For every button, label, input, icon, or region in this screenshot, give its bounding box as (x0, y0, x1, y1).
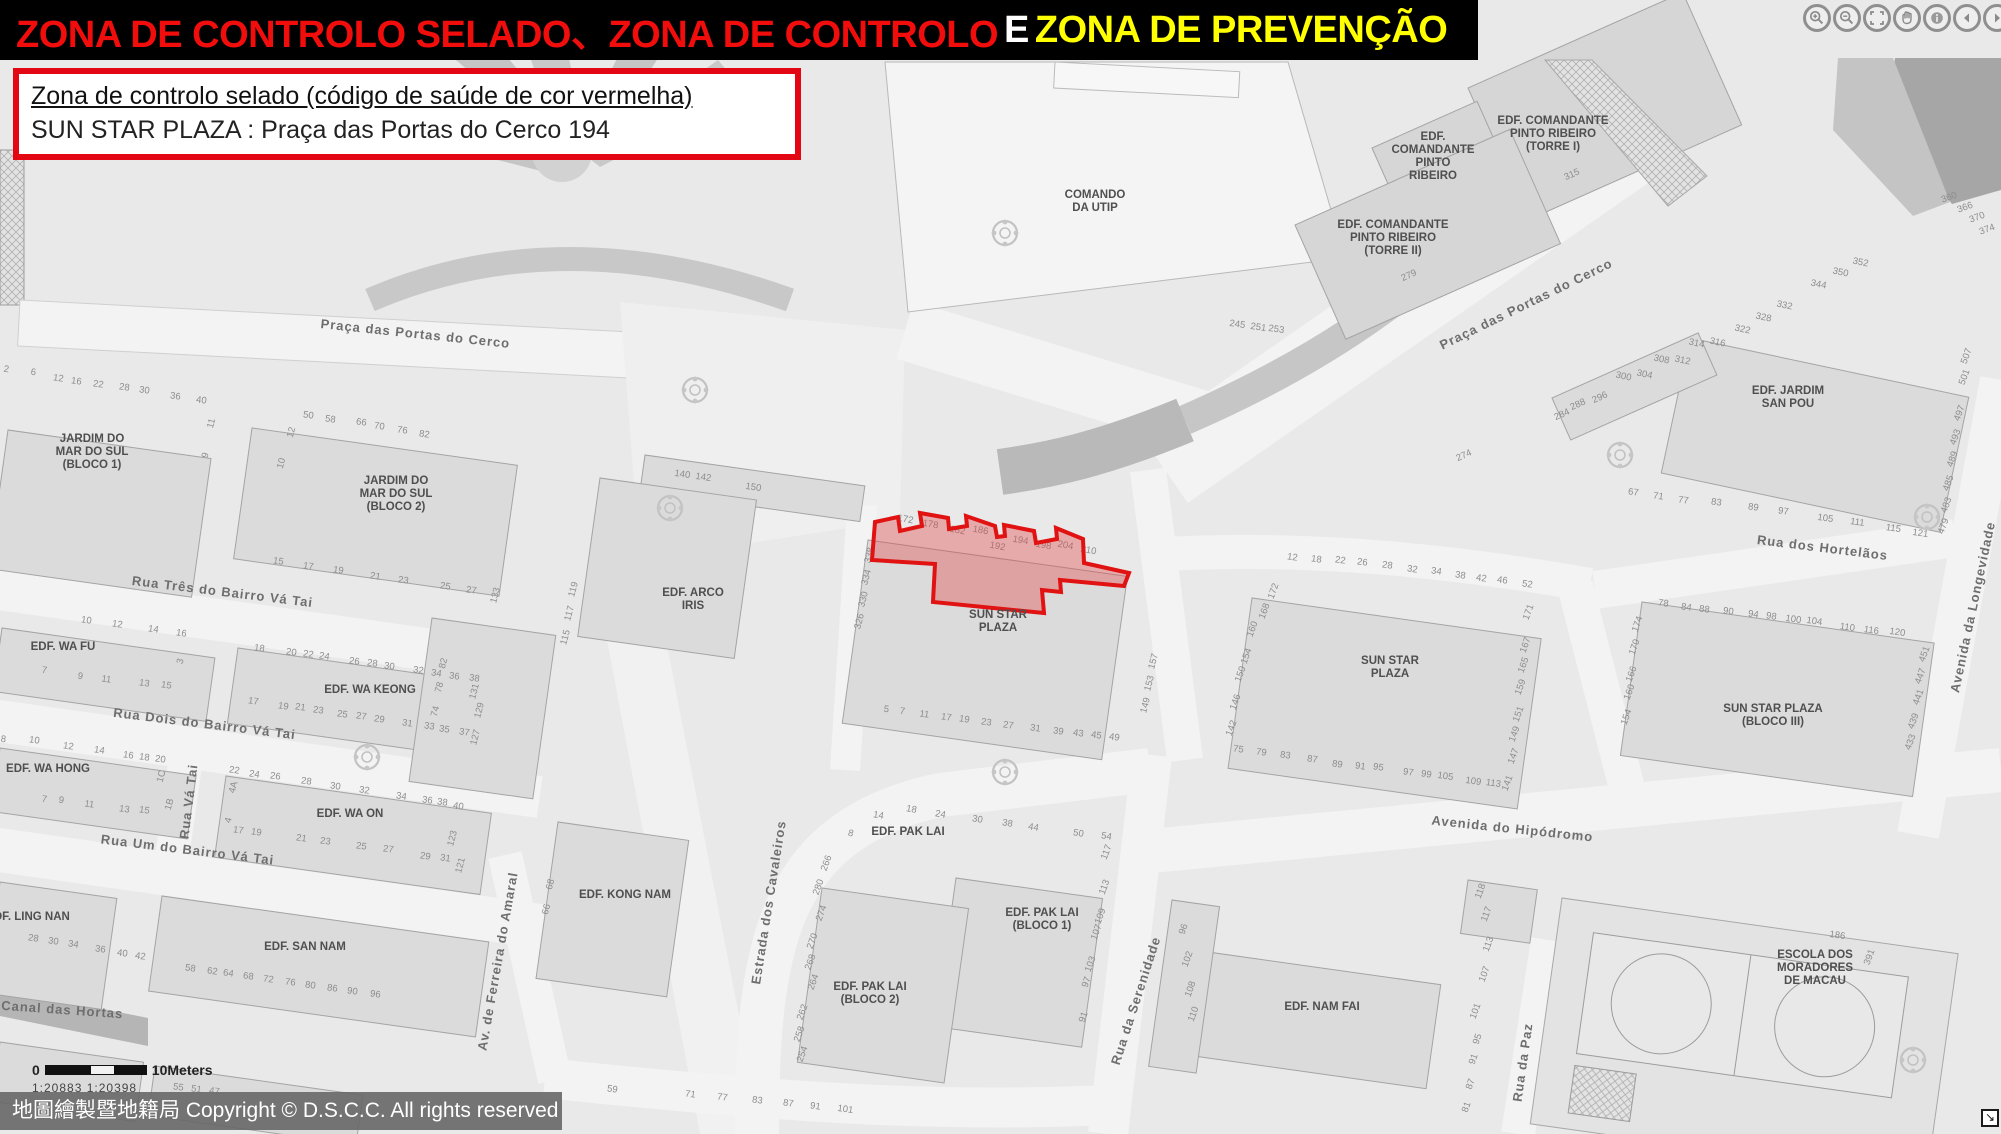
house-number: 27 (465, 584, 477, 596)
house-number: 23 (397, 574, 409, 586)
house-number: 18 (138, 751, 150, 763)
house-number: 20 (154, 753, 166, 765)
house-number: 39 (1052, 725, 1064, 737)
pan-button[interactable] (1893, 4, 1921, 32)
house-number: 83 (1710, 496, 1722, 508)
house-number: 54 (1100, 830, 1112, 843)
house-number: 28 (118, 381, 130, 393)
overview-toggle-button[interactable]: ↘ (1981, 1109, 1999, 1127)
house-number: 91 (809, 1100, 821, 1112)
house-number: 10 (80, 614, 92, 626)
scale-bar-graphic (45, 1065, 147, 1075)
house-number: 98 (1765, 610, 1777, 622)
house-number: 105 (1437, 770, 1454, 783)
title-red-text: ZONA DE CONTROLO SELADO、ZONA DE CONTROLO (16, 3, 998, 58)
house-number: 68 (242, 970, 254, 982)
house-number: 14 (872, 809, 884, 822)
house-number: 43 (1072, 727, 1084, 739)
house-number: 30 (383, 660, 395, 672)
house-number: 26 (348, 655, 360, 667)
house-number: 64 (222, 967, 234, 979)
house-number: 29 (373, 713, 385, 725)
house-number: 10 (28, 734, 40, 746)
title-yellow-text: ZONA DE PREVENÇÃO (1035, 9, 1447, 52)
house-number: 142 (695, 471, 712, 484)
house-number: 75 (1232, 743, 1244, 755)
zoom-out-button[interactable] (1833, 4, 1861, 32)
sealed-zone-info-box: Zona de controlo selado (código de saúde… (13, 68, 801, 160)
house-number: 97 (1777, 505, 1789, 517)
house-number: 34 (1430, 565, 1442, 577)
house-number: 31 (1029, 722, 1041, 734)
house-number: 14 (93, 744, 105, 756)
building-label: ESCOLA DOSMORADORESDE MACAU (1777, 949, 1853, 987)
house-number: 22 (228, 764, 240, 776)
house-number: 71 (1652, 490, 1664, 502)
house-number: 66 (355, 416, 367, 428)
house-number: 87 (1306, 753, 1318, 765)
house-number: 23 (319, 835, 331, 847)
house-number: 34 (430, 667, 442, 679)
house-number: 24 (248, 768, 260, 780)
house-number: 79 (1255, 746, 1267, 758)
house-number: 83 (751, 1094, 763, 1106)
house-number: 11 (84, 798, 95, 810)
building-label: EDF. WA ON (317, 808, 384, 820)
copyright-bar: 地圖繪製暨地籍局 Copyright © D.S.C.C. All rights… (0, 1092, 562, 1130)
house-number: 15 (272, 555, 284, 567)
house-number: 21 (294, 701, 306, 713)
house-number: 38 (468, 672, 480, 684)
copyright-text: 地圖繪製暨地籍局 Copyright © D.S.C.C. All rights… (12, 1099, 558, 1122)
house-number: 22 (302, 648, 314, 660)
house-number: 19 (277, 700, 289, 712)
house-number: 28 (1381, 559, 1393, 571)
house-number: 50 (1072, 827, 1084, 840)
zoom-in-icon (1809, 10, 1825, 26)
house-number: 17 (247, 695, 259, 707)
house-number: 24 (934, 808, 946, 821)
house-number: 19 (958, 713, 970, 725)
building-label: JARDIM DOMAR DO SUL(BLOCO 2) (360, 475, 433, 513)
house-number: 50 (302, 409, 314, 421)
info-icon (1929, 10, 1945, 26)
house-number: 52 (1521, 578, 1533, 590)
house-number: 19 (332, 564, 344, 576)
house-number: 89 (1331, 758, 1343, 770)
house-number: 31 (401, 717, 413, 729)
house-number: 33 (423, 720, 435, 732)
building-label: EDF. JARDIMSAN POU (1752, 385, 1824, 410)
house-number: 58 (324, 413, 336, 425)
zoom-out-icon (1839, 10, 1855, 26)
house-number: 71 (684, 1088, 696, 1100)
house-number: 14 (147, 623, 159, 635)
house-number: 45 (1090, 729, 1102, 741)
house-number: 36 (169, 390, 181, 402)
house-number: 36 (421, 794, 433, 806)
house-number: 12 (1286, 551, 1298, 563)
house-number: 109 (1465, 775, 1482, 788)
house-number: 32 (1406, 563, 1418, 575)
pan-hand-icon (1899, 10, 1915, 26)
house-number: 59 (606, 1083, 618, 1095)
title-bar: ZONA DE CONTROLO SELADO、ZONA DE CONTROLO… (0, 0, 1478, 60)
house-number: 19 (250, 826, 262, 838)
map-canvas[interactable]: 1721781821861921941982042103263303343385… (0, 0, 2001, 1134)
house-number: 150 (745, 481, 762, 494)
house-number: 22 (1334, 554, 1346, 566)
house-number: 30 (329, 780, 341, 792)
house-number: 82 (418, 428, 430, 440)
house-number: 30 (47, 935, 59, 947)
house-number: 94 (1747, 608, 1759, 620)
house-number: 42 (134, 950, 146, 962)
house-number: 46 (1496, 574, 1508, 586)
house-number: 77 (1677, 494, 1689, 506)
house-number: 49 (1108, 731, 1120, 743)
house-number: 16 (175, 627, 187, 639)
house-number: 101 (837, 1103, 854, 1116)
house-number: 78 (1657, 597, 1669, 609)
house-number: 140 (674, 468, 691, 481)
house-number: 12 (62, 740, 74, 752)
building-label: EDF. LING NAN (0, 911, 70, 923)
house-number: 84 (1680, 601, 1692, 613)
building-label: EDF. NAM FAI (1284, 1001, 1359, 1013)
house-number: 17 (940, 711, 952, 723)
scale-meters-label: 10Meters (152, 1062, 213, 1078)
house-number: 21 (369, 570, 381, 582)
house-number: 62 (206, 965, 218, 977)
house-number: 186 (1829, 929, 1846, 942)
house-number: 12 (111, 618, 123, 630)
house-number: 105 (1817, 512, 1834, 525)
house-number: 121 (1912, 527, 1929, 540)
house-number: 38 (1001, 817, 1013, 830)
house-number: 87 (782, 1097, 794, 1109)
house-number: 245 (1229, 318, 1246, 331)
map-application: 1721781821861921941982042103263303343385… (0, 0, 2001, 1134)
house-number: 24 (318, 650, 330, 662)
house-number: 30 (971, 813, 983, 826)
house-number: 28 (27, 932, 39, 944)
house-number: 76 (396, 424, 408, 436)
house-number: 34 (395, 790, 407, 802)
house-number: 27 (1002, 719, 1014, 731)
house-number: 28 (300, 775, 312, 787)
full-extent-icon (1869, 10, 1885, 26)
house-number: 26 (269, 770, 281, 782)
house-number: 80 (304, 979, 316, 991)
house-number: 34 (67, 938, 79, 950)
house-number: 17 (302, 560, 314, 572)
house-number: 22 (92, 378, 104, 390)
house-number: 251 (1250, 321, 1267, 334)
house-number: 40 (452, 800, 464, 812)
house-number: 27 (355, 710, 367, 722)
house-number: 37 (458, 726, 470, 738)
house-number: 97 (1402, 766, 1414, 778)
house-number: 83 (1279, 749, 1291, 761)
house-number: 36 (448, 670, 460, 682)
house-number: 32 (412, 664, 424, 676)
house-number: 116 (1863, 624, 1880, 637)
house-number: 90 (1722, 605, 1734, 617)
house-number: 95 (1372, 761, 1384, 773)
house-number: 99 (1420, 768, 1432, 780)
next-extent-button[interactable] (1983, 4, 2001, 32)
house-number: 32 (358, 784, 370, 796)
house-number: 23 (312, 704, 324, 716)
house-number: 35 (438, 723, 450, 735)
house-number: 40 (195, 394, 207, 406)
house-number: 18 (905, 803, 917, 816)
building-label: JARDIM DOMAR DO SUL(BLOCO 1) (56, 433, 129, 471)
house-number: 28 (366, 657, 378, 669)
house-number: 36 (94, 943, 106, 955)
info-box-line1: Zona de controlo selado (código de saúde… (31, 79, 783, 113)
arrow-left-circle-icon (1959, 10, 1975, 26)
house-number: 76 (284, 976, 296, 988)
house-number: 16 (122, 749, 134, 761)
building-label: EDF. WA HONG (6, 763, 90, 775)
map-toolbar (1803, 4, 2001, 32)
house-number: 72 (262, 973, 274, 985)
house-number: 13 (138, 677, 150, 689)
house-number: 44 (1027, 821, 1039, 834)
house-number: 77 (716, 1091, 728, 1103)
building-label: EDF. PAK LAI(BLOCO 1) (1005, 907, 1078, 932)
scale-zero-label: 0 (32, 1062, 40, 1078)
house-number: 31 (439, 852, 451, 864)
identify-button[interactable] (1923, 4, 1951, 32)
house-number: 13 (118, 803, 130, 815)
house-number: 25 (336, 708, 348, 720)
house-number: 91 (1354, 760, 1366, 772)
house-number: 90 (346, 985, 358, 997)
building-label: EDF. SAN NAM (264, 941, 346, 953)
house-number: 38 (1454, 569, 1466, 581)
house-number: 110 (1839, 621, 1856, 634)
house-number: 86 (326, 982, 338, 994)
zoom-in-button[interactable] (1803, 4, 1831, 32)
building-label: EDF. PAK LAI (871, 826, 944, 838)
house-number: 111 (1849, 516, 1865, 529)
house-number: 42 (1475, 572, 1487, 584)
house-number: 67 (1627, 486, 1639, 498)
house-number: 38 (436, 796, 448, 808)
house-number: 18 (1310, 553, 1322, 565)
house-number: 40 (116, 947, 128, 959)
house-number: 15 (138, 804, 150, 816)
arrow-right-circle-icon (1989, 10, 2001, 26)
house-number: 89 (1747, 501, 1759, 513)
house-number: 20 (285, 646, 297, 658)
house-number: 18 (253, 642, 265, 654)
scale-bar: 0 10Meters 1:20883 1:20398 (32, 1062, 213, 1095)
house-number: 88 (1698, 603, 1710, 615)
house-number: 16 (70, 375, 82, 387)
house-number: 25 (439, 580, 451, 592)
info-box-line2: SUN STAR PLAZA : Praça das Portas do Cer… (31, 113, 783, 147)
building-label: EDF. WA FU (31, 641, 96, 653)
overview-arrow-icon: ↘ (1985, 1110, 1995, 1124)
house-number: 120 (1889, 626, 1906, 639)
house-number: 30 (138, 384, 150, 396)
house-number: 21 (295, 832, 307, 844)
previous-extent-button[interactable] (1953, 4, 1981, 32)
full-extent-button[interactable] (1863, 4, 1891, 32)
house-number: 11 (919, 708, 930, 720)
house-number: 11 (101, 673, 112, 685)
house-number: 70 (373, 420, 385, 432)
building-label: COMANDODA UTIP (1065, 189, 1126, 214)
house-number: 100 (1785, 613, 1802, 626)
house-number: 253 (1268, 323, 1285, 336)
house-number: 104 (1806, 615, 1823, 628)
house-number: 58 (184, 962, 196, 974)
building-label: EDF. PAK LAI(BLOCO 2) (833, 981, 906, 1006)
building-label: EDF. WA KEONG (324, 684, 416, 696)
house-number: 26 (1356, 556, 1368, 568)
house-number: 17 (232, 824, 244, 836)
house-number: 15 (160, 679, 172, 691)
building-label: EDF. KONG NAM (579, 889, 671, 901)
house-number: 27 (382, 843, 394, 855)
house-number: 23 (980, 716, 992, 728)
house-number: 25 (355, 840, 367, 852)
house-number: 29 (419, 850, 431, 862)
house-number: 115 (1885, 522, 1902, 535)
house-number: 96 (369, 988, 381, 1000)
title-white-text: E (998, 9, 1035, 52)
house-number: 12 (52, 372, 64, 384)
